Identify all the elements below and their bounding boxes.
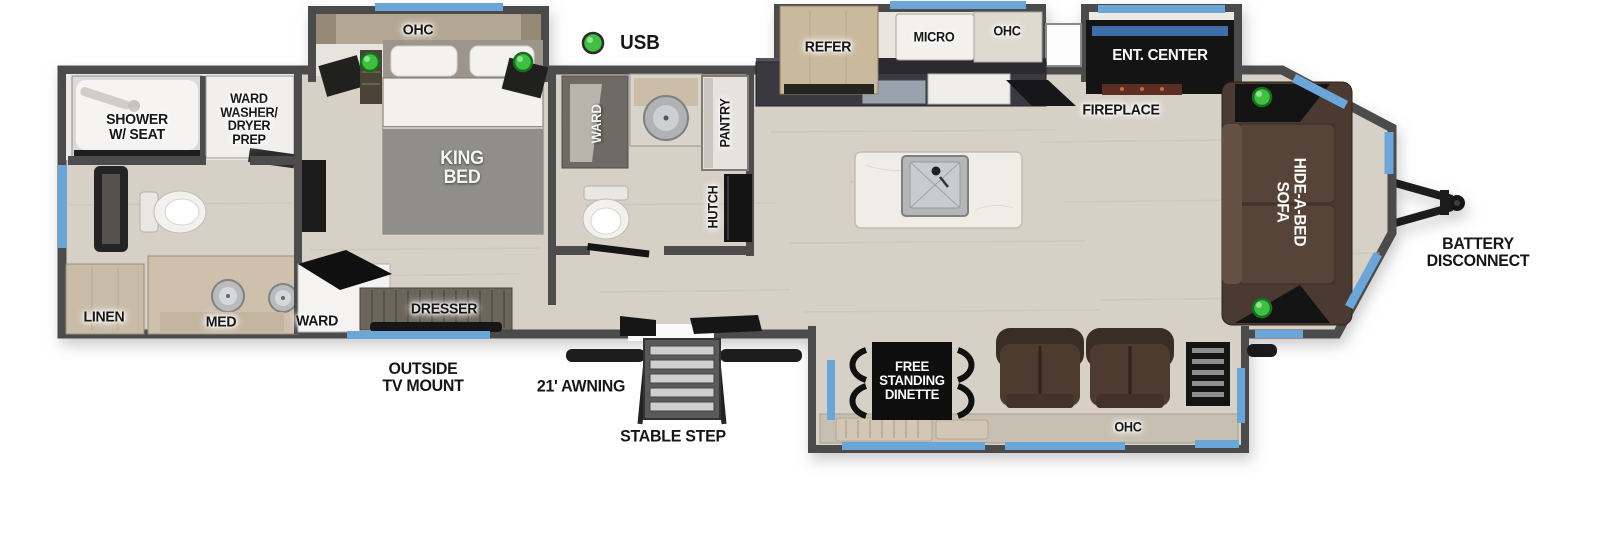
window: [842, 442, 985, 450]
battery-disconnect-label: BATTERY DISCONNECT: [1427, 235, 1530, 269]
usb-dot: [1253, 88, 1271, 106]
grab-handle: [1247, 344, 1277, 357]
usb-legend-label: USB: [620, 33, 660, 53]
island-faucet: [932, 167, 941, 176]
window: [347, 331, 490, 339]
kitchen-ohc-label: OHC: [993, 24, 1020, 38]
window: [827, 360, 835, 420]
tv: [1092, 26, 1228, 36]
living-ohc-label: OHC: [1114, 420, 1141, 434]
stable-step-label: STABLE STEP: [620, 428, 726, 445]
fireplace-label: FIREPLACE: [1082, 103, 1159, 118]
mid-toilet: [583, 186, 629, 239]
king-bed-label: KING BED: [440, 149, 484, 187]
vent-ladder: [1186, 342, 1230, 406]
midbath-ward-label: WARD: [589, 104, 603, 143]
usb-dot: [514, 53, 532, 71]
hutch-label: HUTCH: [706, 185, 720, 228]
shower-label: SHOWER W/ SEAT: [106, 112, 168, 142]
linen-label: LINEN: [84, 310, 125, 325]
usb-dot: [361, 53, 379, 71]
window: [1005, 442, 1125, 450]
stable-step: [640, 339, 724, 424]
rv-floorplan: USB OHC SHOWER W/ SEAT WARD WASHER/ DRYE…: [0, 0, 1600, 539]
outside-tv-mount-label: OUTSIDE TV MOUNT: [382, 360, 463, 394]
bedroom-ward-label: WARD: [296, 314, 338, 329]
usb-legend-dot: [583, 33, 603, 53]
dinette-benches: [836, 418, 988, 441]
ent-center-label: ENT. CENTER: [1112, 48, 1208, 64]
med-label: MED: [206, 315, 236, 330]
micro-label: MICRO: [914, 30, 955, 44]
kitchen-island: [855, 152, 1022, 228]
pantry-label: PANTRY: [718, 98, 732, 147]
dresser-label: DRESSER: [411, 302, 477, 317]
window: [1255, 330, 1303, 338]
awning-label: 21' AWNING: [537, 378, 625, 395]
refer-label: REFER: [805, 40, 851, 55]
theater-seat: [996, 328, 1084, 408]
pillow: [391, 46, 457, 76]
trailer-hitch: [1388, 181, 1465, 225]
usb-dot: [1253, 299, 1271, 317]
bath-sink: [630, 74, 702, 146]
floorplan-canvas: [0, 0, 1600, 539]
washer-dryer-prep-label: WARD WASHER/ DRYER PREP: [220, 92, 277, 146]
rear-toilet: [140, 191, 206, 233]
window: [1195, 440, 1239, 448]
theater-seat: [1086, 328, 1174, 408]
window: [375, 3, 503, 11]
sofa-label: HIDE-A-BED SOFA: [1275, 158, 1308, 247]
dinette-label: FREE STANDING DINETTE: [879, 359, 944, 401]
window: [1098, 5, 1225, 13]
window: [890, 1, 1026, 9]
window: [1237, 368, 1245, 423]
window: [58, 165, 67, 248]
bedroom-ohc-label: OHC: [403, 23, 433, 38]
